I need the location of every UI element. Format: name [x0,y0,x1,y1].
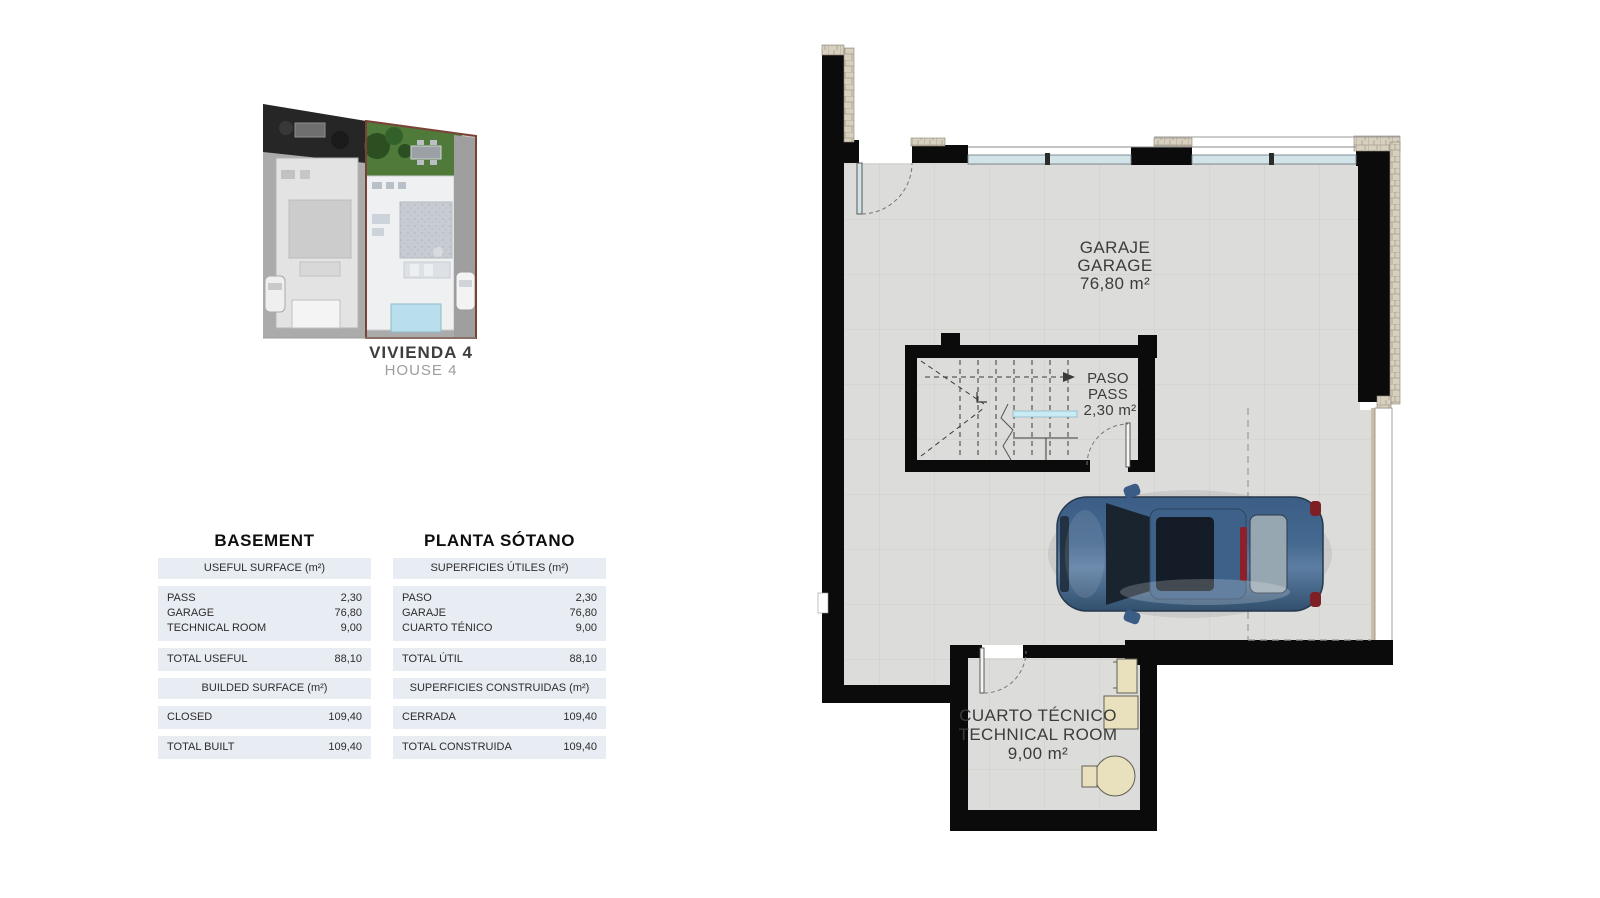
technical-label-es: CUARTO TÉCNICO [959,706,1117,725]
row-value: 109,40 [328,741,362,754]
thumbnail-subtitle: HOUSE 4 [335,362,507,379]
total-useful-row: TOTAL ÚTIL 88,10 [393,648,606,671]
equipment-unit [1117,659,1137,693]
car-brake-light [1240,527,1247,581]
row-value: 9,00 [341,622,362,635]
row-label: GARAGE [167,607,214,620]
car-taillight [1310,592,1321,607]
row-label: PASS [167,592,196,605]
useful-surface-header: SUPERFICIES ÚTILES (m²) [393,558,606,579]
table-title: BASEMENT [158,531,371,551]
window-mullion [1269,153,1274,165]
right-pool [391,304,441,332]
row-label: PASO [402,592,432,605]
row-value: 109,40 [328,711,362,724]
light-well [1375,408,1392,641]
row-label: TECHNICAL ROOM [167,622,266,635]
row-label: TOTAL USEFUL [167,653,247,666]
row-value: 88,10 [334,653,362,666]
useful-surface-rows: PASS 2,30 GARAGE 76,80 TECHNICAL ROOM 9,… [158,586,371,641]
row-label: GARAJE [402,607,446,620]
technical-door-leaf [980,648,984,693]
row-label: TOTAL BUILT [167,741,234,754]
row-value: 9,00 [576,622,597,635]
table-row: TECHNICAL ROOM 9,00 [158,621,371,636]
row-value: 88,10 [569,653,597,666]
row-label: CUARTO TÉNICO [402,622,492,635]
pass-label-es: PASO [1087,370,1129,387]
table-row: PASO 2,30 [393,591,606,606]
pass-label-en: PASS [1088,386,1128,403]
row-value: 2,30 [576,592,597,605]
left-garden-table-icon [295,123,325,137]
car-top-view [1048,483,1332,626]
surface-table-english: BASEMENT USEFUL SURFACE (m²) PASS 2,30 G… [158,531,371,766]
row-value: 109,40 [563,711,597,724]
table-row: PASS 2,30 [158,591,371,606]
row-label: CLOSED [167,711,212,724]
equipment-unit [1082,766,1097,787]
garden-table-icon [411,146,441,159]
garage-area: 76,80 m² [1080,274,1150,293]
useful-surface-header: USEFUL SURFACE (m²) [158,558,371,579]
total-useful-row: TOTAL USEFUL 88,10 [158,648,371,671]
garage-label-es: GARAJE [1080,238,1150,257]
site-plan-thumbnail [263,104,476,338]
left-car-icon [265,276,285,312]
closed-row: CERRADA 109,40 [393,706,606,729]
row-value: 2,30 [341,592,362,605]
right-car-icon [456,272,475,310]
window-mullion [1045,153,1050,165]
row-value: 76,80 [569,607,597,620]
basement-plan: GARAJE GARAGE 76,80 m² PASO PASS 2,30 m²… [818,45,1400,831]
table-title: PLANTA SÓTANO [393,531,606,551]
wall-opening [818,593,828,613]
entrance-door-leaf [857,163,862,214]
table-row: GARAGE 76,80 [158,606,371,621]
technical-area: 9,00 m² [1008,744,1068,763]
thumbnail-title: VIVIENDA 4 [335,343,507,363]
row-value: 109,40 [563,741,597,754]
row-value: 76,80 [334,607,362,620]
tree-icon [385,127,403,145]
page: GARAJE GARAGE 76,80 m² PASO PASS 2,30 m²… [0,0,1600,898]
stair-landing-glass [1013,411,1077,417]
row-label: TOTAL ÚTIL [402,653,463,666]
built-surface-header: BUILDED SURFACE (m²) [158,678,371,699]
table-row: CUARTO TÉNICO 9,00 [393,621,606,636]
row-label: CERRADA [402,711,456,724]
pass-area: 2,30 m² [1084,402,1137,419]
useful-surface-rows: PASO 2,30 GARAJE 76,80 CUARTO TÉNICO 9,0… [393,586,606,641]
car-rear-window [1250,515,1287,593]
surface-table-spanish: PLANTA SÓTANO SUPERFICIES ÚTILES (m²) PA… [393,531,606,766]
car-taillight [1310,501,1321,516]
closed-row: CLOSED 109,40 [158,706,371,729]
table-row: GARAJE 76,80 [393,606,606,621]
garage-label-en: GARAGE [1077,256,1152,275]
left-pool [292,300,340,328]
water-tank [1095,756,1135,796]
total-built-row: TOTAL BUILT 109,40 [158,736,371,759]
tree-icon [398,144,412,158]
built-surface-header: SUPERFICIES CONSTRUIDAS (m²) [393,678,606,699]
pass-door-leaf [1126,423,1130,467]
total-built-row: TOTAL CONSTRUIDA 109,40 [393,736,606,759]
technical-label-en: TECHNICAL ROOM [959,725,1118,744]
row-label: TOTAL CONSTRUIDA [402,741,512,754]
